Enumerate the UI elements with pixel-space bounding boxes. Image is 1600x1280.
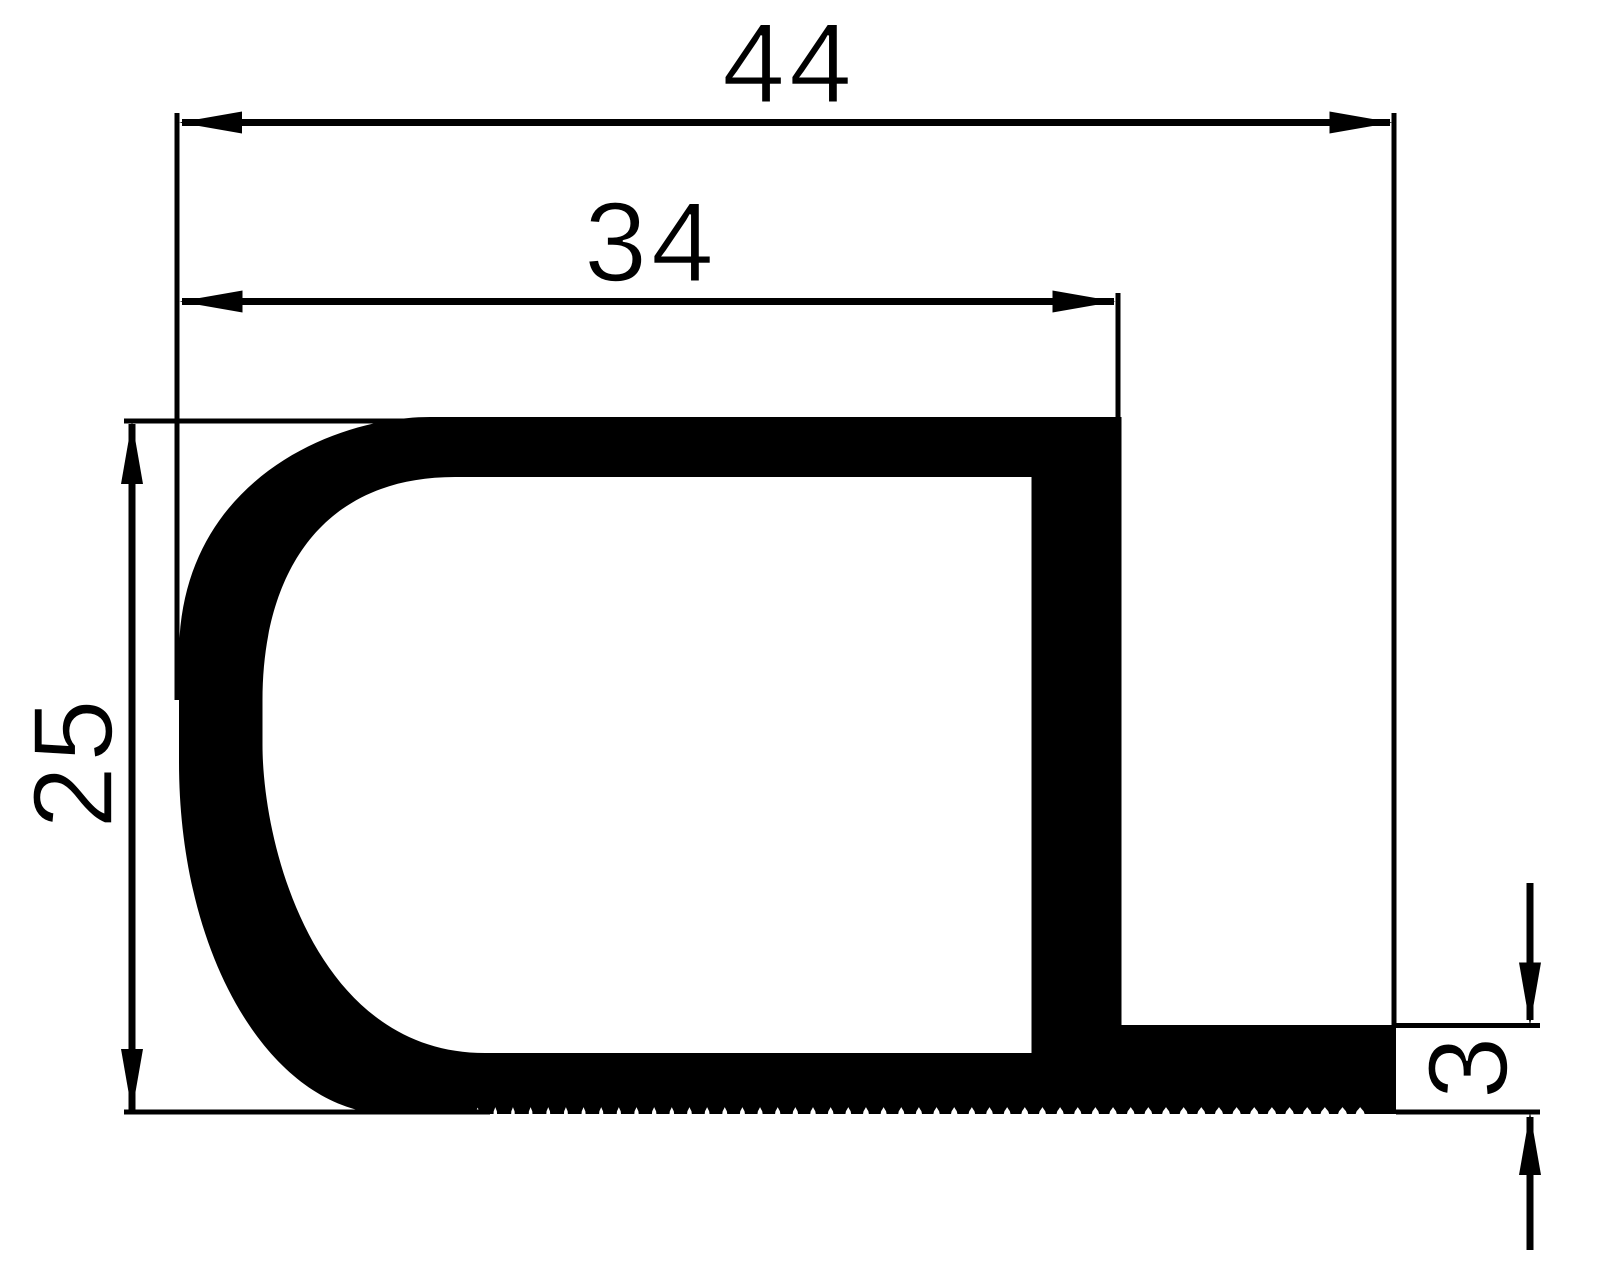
- svg-text:44: 44: [722, 0, 856, 126]
- svg-text:3: 3: [1405, 1037, 1531, 1100]
- svg-text:34: 34: [584, 179, 718, 305]
- svg-text:25: 25: [10, 695, 136, 829]
